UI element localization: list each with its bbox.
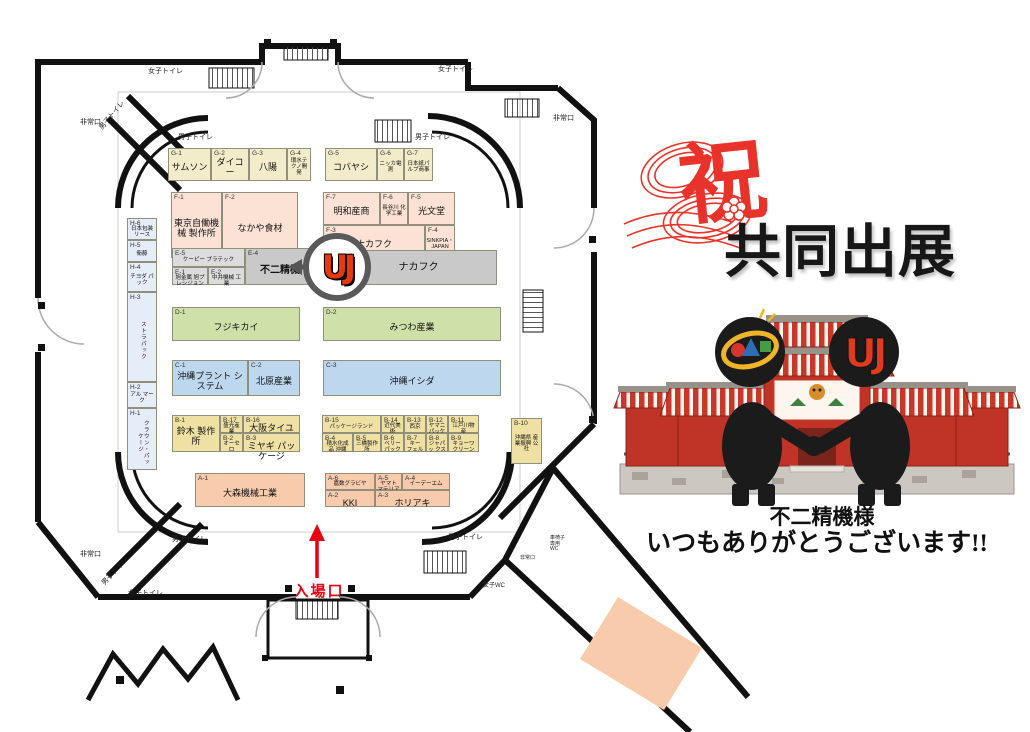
uj-logo-letters: UJ [322, 248, 352, 286]
flyer-page: G-1サムソンG-2ダイコーG-3八陽G-4環水テクノ開発G-5コバヤシG-6ニ… [0, 0, 1030, 732]
uj-logo-circle: UJ [303, 233, 371, 301]
arrows-layer [0, 0, 1030, 732]
entrance-arrow [309, 524, 325, 578]
